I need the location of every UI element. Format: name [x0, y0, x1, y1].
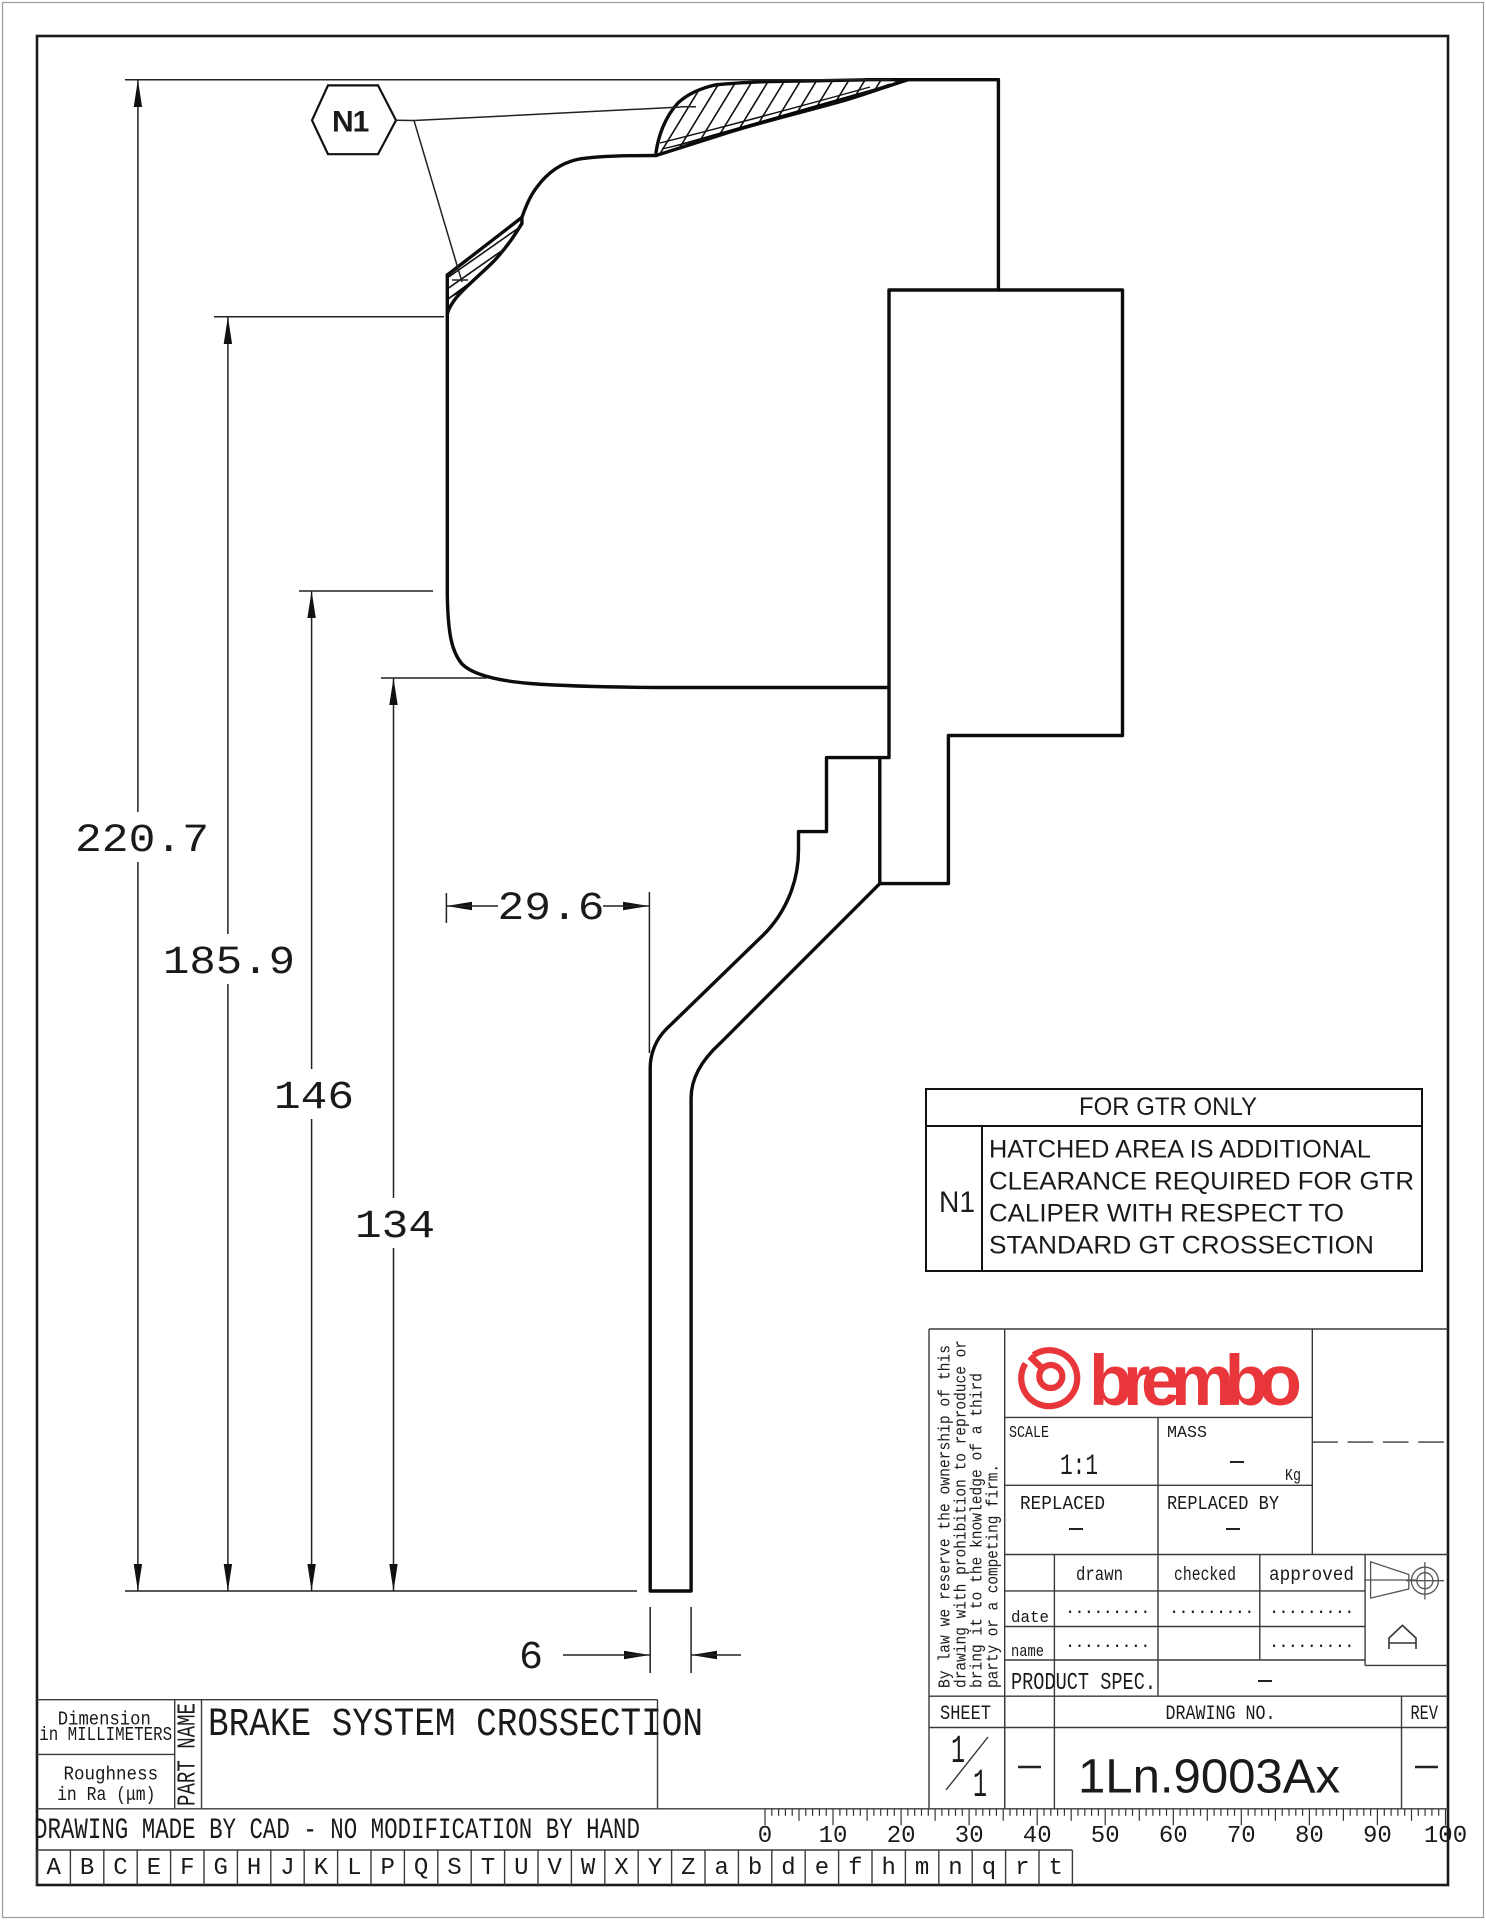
svg-text:70: 70	[1227, 1823, 1256, 1850]
svg-text:n: n	[948, 1855, 962, 1882]
svg-text:REPLACED: REPLACED	[1020, 1493, 1105, 1515]
svg-text:B: B	[80, 1855, 94, 1882]
svg-text:.........: .........	[1269, 1634, 1354, 1653]
svg-text:220.7: 220.7	[75, 819, 209, 864]
svg-text:.........: .........	[1269, 1600, 1354, 1619]
svg-text:29.6: 29.6	[498, 887, 605, 932]
svg-text:X: X	[614, 1855, 628, 1882]
svg-text:W: W	[581, 1855, 596, 1882]
svg-text:80: 80	[1295, 1823, 1324, 1850]
svg-text:6: 6	[519, 1636, 543, 1681]
svg-text:Kg: Kg	[1285, 1467, 1301, 1486]
svg-text:Z: Z	[681, 1855, 695, 1882]
svg-text:H: H	[247, 1855, 261, 1882]
svg-text:d: d	[781, 1855, 795, 1882]
svg-text:20: 20	[887, 1823, 916, 1850]
svg-text:brembo: brembo	[1089, 1342, 1299, 1421]
svg-text:name: name	[1011, 1643, 1044, 1662]
svg-text:STANDARD GT CROSSECTION: STANDARD GT CROSSECTION	[989, 1232, 1374, 1260]
svg-text:50: 50	[1091, 1823, 1120, 1850]
svg-text:PART NAME: PART NAME	[173, 1703, 203, 1806]
svg-text:30: 30	[955, 1823, 984, 1850]
svg-text:E: E	[147, 1855, 161, 1882]
svg-text:J: J	[280, 1855, 294, 1882]
svg-text:60: 60	[1159, 1823, 1188, 1850]
svg-text:146: 146	[274, 1076, 354, 1121]
svg-text:date: date	[1011, 1609, 1049, 1628]
svg-text:Q: Q	[414, 1855, 428, 1882]
svg-text:100: 100	[1424, 1823, 1467, 1850]
svg-text:in Ra (μm): in Ra (μm)	[57, 1784, 155, 1806]
svg-text:.........: .........	[1169, 1600, 1254, 1619]
svg-text:Y: Y	[648, 1855, 662, 1882]
svg-text:f: f	[848, 1855, 862, 1882]
svg-text:10: 10	[819, 1823, 848, 1850]
svg-text:q: q	[982, 1855, 996, 1882]
svg-text:r: r	[1015, 1855, 1029, 1882]
svg-text:a: a	[715, 1855, 729, 1882]
svg-text:SHEET: SHEET	[940, 1703, 991, 1726]
svg-text:U: U	[514, 1855, 528, 1882]
svg-text:1Ln.9003Ax: 1Ln.9003Ax	[1078, 1751, 1340, 1804]
svg-text:party or a competing firm.: party or a competing firm.	[985, 1464, 1004, 1688]
svg-text:HATCHED AREA IS ADDITIONAL: HATCHED AREA IS ADDITIONAL	[989, 1136, 1371, 1164]
svg-text:FOR GTR ONLY: FOR GTR ONLY	[1079, 1093, 1257, 1121]
svg-text:DRAWING NO.: DRAWING NO.	[1166, 1703, 1276, 1726]
svg-text:PRODUCT SPEC.: PRODUCT SPEC.	[1011, 1670, 1156, 1697]
svg-text:CLEARANCE REQUIRED FOR GTR: CLEARANCE REQUIRED FOR GTR	[989, 1168, 1414, 1196]
svg-text:F: F	[180, 1855, 194, 1882]
svg-text:T: T	[481, 1855, 495, 1882]
svg-text:checked: checked	[1174, 1564, 1236, 1586]
svg-text:b: b	[748, 1855, 762, 1882]
svg-text:N1: N1	[939, 1186, 975, 1219]
svg-text:SCALE: SCALE	[1009, 1424, 1049, 1443]
svg-text:in MILLIMETERS: in MILLIMETERS	[39, 1724, 172, 1746]
svg-text:t: t	[1049, 1855, 1063, 1882]
svg-text:L: L	[347, 1855, 361, 1882]
svg-text:.........: .........	[1065, 1634, 1150, 1653]
svg-text:90: 90	[1363, 1823, 1392, 1850]
svg-text:V: V	[548, 1855, 563, 1882]
svg-text:185.9: 185.9	[163, 941, 295, 986]
svg-text:BRAKE SYSTEM CROSSECTION: BRAKE SYSTEM CROSSECTION	[208, 1703, 703, 1748]
svg-text:A: A	[47, 1855, 62, 1882]
svg-text:G: G	[214, 1855, 228, 1882]
svg-text:e: e	[815, 1855, 829, 1882]
svg-text:MASS: MASS	[1167, 1424, 1207, 1443]
svg-text:.........: .........	[1065, 1600, 1150, 1619]
svg-text:h: h	[882, 1855, 896, 1882]
svg-text:P: P	[381, 1855, 395, 1882]
svg-text:m: m	[915, 1855, 929, 1882]
svg-text:N1: N1	[332, 106, 369, 139]
svg-text:1: 1	[973, 1764, 987, 1809]
svg-text:Roughness: Roughness	[64, 1764, 159, 1786]
svg-text:134: 134	[355, 1205, 435, 1250]
svg-text:S: S	[447, 1855, 461, 1882]
svg-text:drawn: drawn	[1076, 1564, 1123, 1586]
svg-text:CALIPER WITH RESPECT TO: CALIPER WITH RESPECT TO	[989, 1200, 1344, 1228]
svg-text:C: C	[113, 1855, 127, 1882]
svg-text:approved: approved	[1269, 1564, 1354, 1586]
svg-text:DRAWING MADE BY CAD - NO MODIF: DRAWING MADE BY CAD - NO MODIFICATION BY…	[34, 1814, 640, 1848]
svg-text:K: K	[314, 1855, 329, 1882]
svg-text:REV: REV	[1411, 1703, 1439, 1726]
svg-text:0: 0	[758, 1823, 772, 1850]
svg-text:40: 40	[1023, 1823, 1052, 1850]
svg-text:REPLACED BY: REPLACED BY	[1167, 1493, 1280, 1515]
svg-text:1:1: 1:1	[1060, 1450, 1098, 1484]
